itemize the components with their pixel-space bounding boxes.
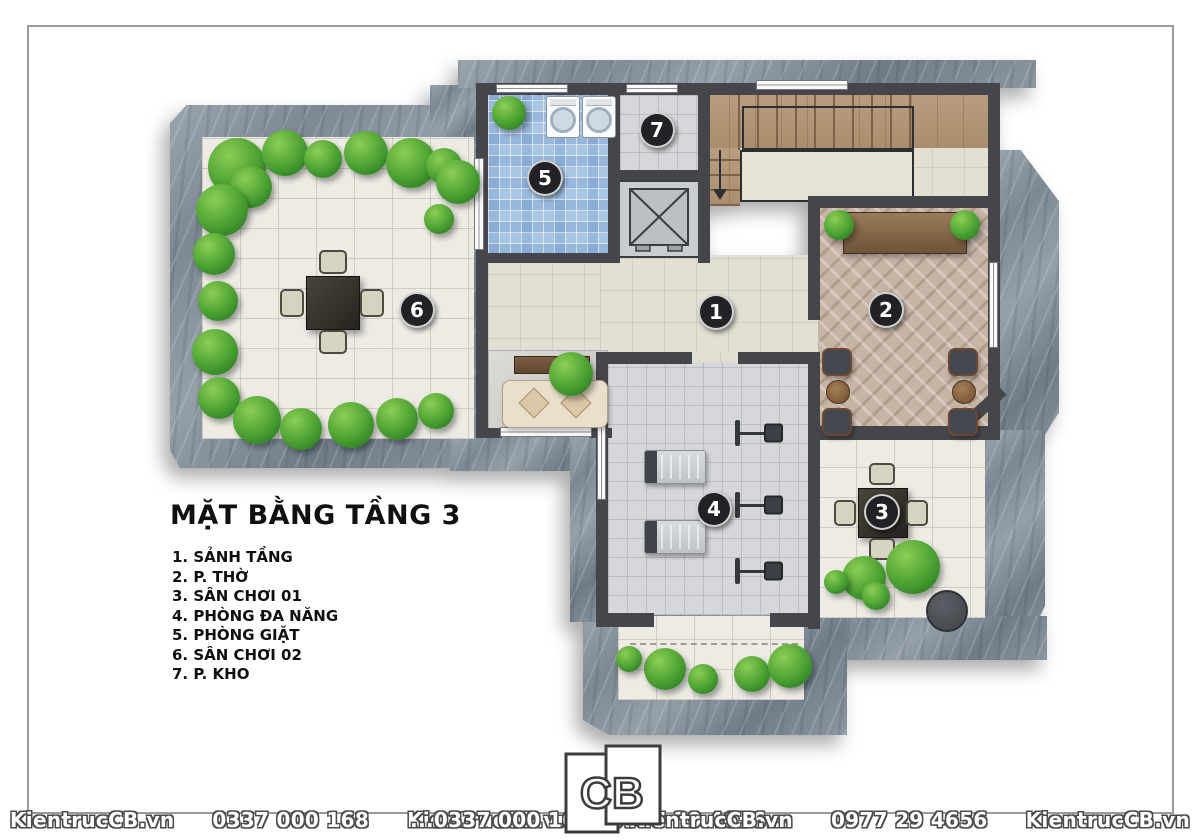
wall <box>988 83 1000 203</box>
legend-item: 2. P. THỜ <box>172 568 338 588</box>
window <box>626 84 678 93</box>
window <box>756 80 848 90</box>
bush <box>688 664 718 694</box>
logo-letter-c: C <box>580 769 612 818</box>
chair <box>906 500 928 526</box>
legend-item: 4. PHÒNG ĐA NĂNG <box>172 607 338 627</box>
stair-void-opening <box>740 150 914 202</box>
wall <box>476 428 502 438</box>
room-badge-laundry: 5 <box>527 160 563 196</box>
wall <box>476 253 620 263</box>
wall <box>808 196 1000 208</box>
wall <box>596 613 654 627</box>
kientruccb-logo-icon: C B <box>558 742 668 838</box>
elevator <box>618 180 700 258</box>
watermark-text: KientrucCB.vn <box>10 808 174 832</box>
window <box>989 262 998 348</box>
wall <box>596 352 692 364</box>
plan-title: MẶT BẰNG TẦNG 3 <box>170 500 461 531</box>
wall <box>698 83 710 263</box>
window <box>500 427 592 437</box>
exercise-bike <box>735 420 783 446</box>
room-badge-gym: 4 <box>696 491 732 527</box>
wall <box>476 253 488 437</box>
potted-plant <box>824 210 854 240</box>
bush <box>824 570 848 594</box>
side-table <box>952 380 976 404</box>
side-table <box>826 380 850 404</box>
wall <box>770 613 820 627</box>
bush <box>198 281 238 321</box>
planter <box>926 590 968 632</box>
room-badge-storage: 7 <box>639 112 675 148</box>
room-number: 6 <box>410 298 424 322</box>
bush <box>262 130 308 176</box>
wall <box>618 170 700 180</box>
bush <box>436 160 480 204</box>
legend-item: 6. SÂN CHƠI 02 <box>172 646 338 666</box>
bush <box>418 393 454 429</box>
armchair <box>822 348 852 376</box>
stairs-direction-stem <box>719 150 721 190</box>
room-number: 3 <box>875 500 889 524</box>
room-number: 1 <box>709 300 723 324</box>
chair <box>834 500 856 526</box>
washing-machine <box>582 96 616 138</box>
logo-letter-b: B <box>612 769 644 818</box>
bush <box>768 644 812 688</box>
armchair <box>948 348 978 376</box>
bush <box>304 140 342 178</box>
potted-plant <box>549 352 593 396</box>
bush <box>376 398 418 440</box>
treadmill <box>644 520 706 554</box>
room-number: 4 <box>707 497 721 521</box>
room-number: 7 <box>650 118 664 142</box>
potted-plant <box>950 210 980 240</box>
pillow <box>518 387 549 418</box>
bush <box>193 233 235 275</box>
room-badge-terrace-01: 3 <box>864 494 900 530</box>
balcony-threshold-line <box>630 643 798 645</box>
watermark-text: 0337 000 168 <box>212 808 369 832</box>
wall <box>808 196 820 320</box>
armchair <box>822 408 852 436</box>
window <box>496 84 568 93</box>
stone-slab-right <box>993 150 1059 470</box>
floor-plan: 1 2 3 4 5 6 7 <box>0 0 1200 840</box>
room-number: 5 <box>538 166 552 190</box>
room-badge-hall: 1 <box>698 294 734 330</box>
wall <box>808 352 820 629</box>
bush <box>328 402 374 448</box>
bush <box>424 204 454 234</box>
dining-table <box>306 276 360 330</box>
bush <box>280 408 322 450</box>
chair <box>319 330 347 354</box>
armchair <box>948 408 978 436</box>
bush <box>196 184 248 236</box>
stairs-down-arrow-icon <box>713 189 727 200</box>
room-number: 2 <box>879 298 893 322</box>
bush <box>344 131 388 175</box>
bush <box>886 540 940 594</box>
legend-item: 1. SẢNH TẦNG <box>172 548 338 568</box>
bush <box>616 646 642 672</box>
bush <box>644 648 686 690</box>
watermark-text: 0977 29 4656 <box>831 808 988 832</box>
page: 1 2 3 4 5 6 7 MẶT BẰNG TẦNG 3 1. SẢNH TẦ… <box>0 0 1200 840</box>
chair <box>319 250 347 274</box>
legend: 1. SẢNH TẦNG 2. P. THỜ 3. SÂN CHƠI 01 4.… <box>172 548 338 685</box>
bush <box>233 396 281 444</box>
watermark-right: ...0337 000 168 KientrucCB.vn 0977 29 46… <box>410 808 1190 832</box>
stair-railing <box>742 106 914 150</box>
altar-table <box>843 212 967 254</box>
legend-item: 5. PHÒNG GIẶT <box>172 626 338 646</box>
bush <box>192 329 238 375</box>
watermark-text: KientrucCB.vn <box>1026 808 1190 832</box>
legend-item: 3. SÂN CHƠI 01 <box>172 587 338 607</box>
chair <box>280 289 304 317</box>
room-badge-worship: 2 <box>868 292 904 328</box>
bush <box>734 656 770 692</box>
legend-item: 7. P. KHO <box>172 665 338 685</box>
room-badge-terrace-02: 6 <box>399 292 435 328</box>
potted-plant <box>492 96 526 130</box>
exercise-bike <box>735 558 783 584</box>
chair <box>869 463 895 485</box>
treadmill <box>644 450 706 484</box>
exercise-bike <box>735 492 783 518</box>
bush <box>862 582 890 610</box>
washing-machine <box>546 96 580 138</box>
chair <box>360 289 384 317</box>
